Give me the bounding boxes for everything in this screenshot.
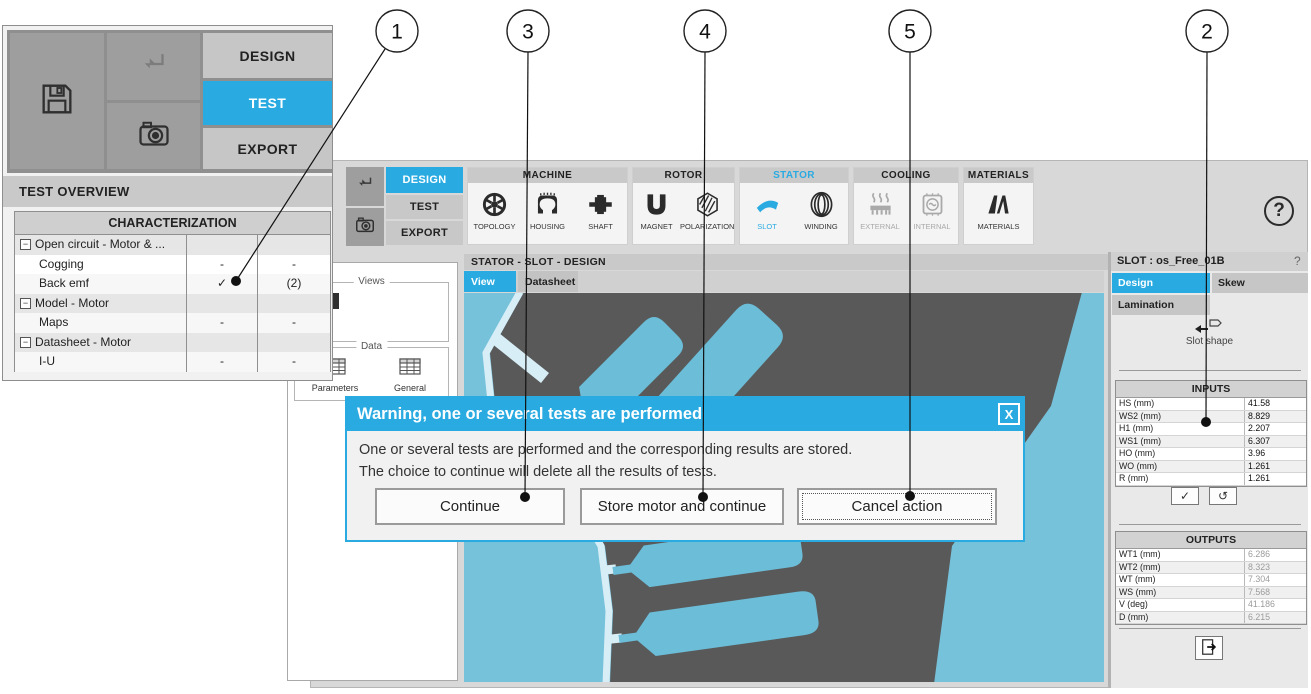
ribbon-group-title: MATERIALS (964, 168, 1033, 183)
ribbon-item-polarization[interactable]: POLARIZATION (680, 188, 734, 231)
ribbon-item-magnet[interactable]: MAGNET (633, 188, 680, 231)
callout-circle-5 (889, 10, 931, 52)
test-status-cell (187, 294, 258, 314)
parameter-row[interactable]: D (mm)6.215 (1116, 612, 1306, 625)
ribbon-item-materials[interactable]: MATERIALS (972, 188, 1026, 231)
callout-number-2: 2 (1201, 21, 1213, 44)
parameter-label: HO (mm) (1116, 448, 1245, 460)
cancel-action-button[interactable]: Cancel action (797, 488, 997, 525)
continue-button[interactable]: Continue (375, 488, 565, 525)
test-count-cell (258, 294, 330, 314)
callout-number-3: 3 (522, 21, 534, 44)
ribbon-group-title: STATOR (740, 168, 848, 183)
save-icon (37, 79, 77, 124)
parameter-label: H1 (mm) (1116, 423, 1245, 435)
parameter-value: 6.215 (1245, 612, 1306, 624)
test-count-cell (258, 235, 330, 255)
test-name: I-U (39, 354, 55, 368)
callout-number-5: 5 (904, 21, 916, 44)
magnet-icon (633, 188, 680, 220)
parameter-row[interactable]: WT (mm)7.304 (1116, 574, 1306, 587)
polarization-icon (680, 188, 734, 220)
ribbon-item-label: INTERNAL (906, 222, 958, 231)
collapse-icon[interactable]: − (20, 337, 31, 348)
tab-datasheet[interactable]: Datasheet (518, 271, 578, 292)
divider (1119, 524, 1301, 525)
parameter-label: WO (mm) (1116, 461, 1245, 473)
ribbon-group-cooling: COOLING EXTERNALINTERNAL (853, 167, 959, 245)
parameter-label: WT2 (mm) (1116, 562, 1245, 574)
housing-icon (521, 188, 574, 220)
test-name: Cogging (39, 257, 84, 271)
test-name: Back emf (39, 276, 89, 290)
dialog-title: Warning, one or several tests are perfor… (347, 398, 1023, 431)
export-icon (1200, 638, 1218, 659)
parameter-value[interactable]: 6.307 (1245, 436, 1306, 448)
test-status-cell: - (187, 352, 258, 372)
ribbon-item-external: EXTERNAL (854, 188, 906, 231)
topology-icon (468, 188, 521, 220)
parameter-row[interactable]: WS (mm)7.568 (1116, 587, 1306, 600)
undo-icon (137, 47, 171, 86)
ribbon-group-title: MACHINE (468, 168, 627, 183)
nav-design-button[interactable]: DESIGN (386, 167, 463, 193)
parameter-row[interactable]: WT2 (mm)8.323 (1116, 562, 1306, 575)
help-button[interactable]: ? (1264, 196, 1294, 226)
dialog-message-line: The choice to continue will delete all t… (359, 464, 1009, 482)
characterization-row[interactable]: Cogging-- (15, 255, 330, 275)
ribbon-item-housing[interactable]: HOUSING (521, 188, 574, 231)
slot-shape-icon[interactable] (1194, 318, 1224, 336)
parameter-value: 6.286 (1245, 549, 1306, 561)
divider (1119, 370, 1301, 371)
parameter-label: D (mm) (1116, 612, 1245, 624)
test-overview-title: TEST OVERVIEW (3, 176, 332, 207)
snapshot-button[interactable] (107, 103, 200, 169)
inputs-rows: HS (mm)41.58WS2 (mm)8.829H1 (mm)2.207WS1… (1116, 398, 1306, 486)
callout-circle-4 (684, 10, 726, 52)
test-status-cell: ✓ (187, 274, 258, 294)
slot-panel-help[interactable]: ? (1294, 252, 1308, 271)
sidebar-item-label: Parameters (305, 383, 365, 393)
parameter-label: WS1 (mm) (1116, 436, 1245, 448)
camera-icon (354, 214, 376, 241)
close-icon[interactable]: X (998, 403, 1020, 425)
test-name: Maps (39, 315, 68, 329)
ribbon-item-label: POLARIZATION (680, 222, 734, 231)
characterization-row[interactable]: −Open circuit - Motor & ... (15, 235, 330, 255)
ribbon-item-slot[interactable]: SLOT (740, 188, 794, 231)
parameter-value[interactable]: 1.261 (1245, 473, 1306, 485)
export-button[interactable]: EXPORT (203, 128, 332, 169)
parameter-label: WT (mm) (1116, 574, 1245, 586)
parameter-row[interactable]: H1 (mm)2.207 (1116, 423, 1306, 436)
tab-view[interactable]: View (464, 271, 516, 292)
characterization-rows: −Open circuit - Motor & ...Cogging--Back… (15, 235, 330, 372)
parameter-row[interactable]: HO (mm)3.96 (1116, 448, 1306, 461)
ribbon-item-label: SLOT (740, 222, 794, 231)
parameter-row[interactable]: V (deg)41.186 (1116, 599, 1306, 612)
parameter-label: V (deg) (1116, 599, 1245, 611)
callout-circle-2 (1186, 10, 1228, 52)
parameter-value: 8.323 (1245, 562, 1306, 574)
ribbon-group-rotor: ROTOR MAGNETPOLARIZATION (632, 167, 735, 245)
characterization-row[interactable]: Back emf✓(2) (15, 274, 330, 294)
parameter-row[interactable]: R (mm)1.261 (1116, 473, 1306, 486)
undo-button[interactable] (107, 33, 200, 100)
parameter-label: HS (mm) (1116, 398, 1245, 410)
ribbon-item-internal: INTERNAL (906, 188, 958, 231)
views-group-label: Views (353, 276, 390, 287)
parameter-row[interactable]: WO (mm)1.261 (1116, 461, 1306, 474)
characterization-row[interactable]: I-U-- (15, 352, 330, 372)
ribbon-item-shaft[interactable]: SHAFT (574, 188, 627, 231)
store-and-continue-button[interactable]: Store motor and continue (580, 488, 784, 525)
characterization-table: CHARACTERIZATION −Open circuit - Motor &… (14, 211, 331, 372)
inputs-title: INPUTS (1116, 381, 1306, 398)
ribbon-group-stator: STATOR SLOTWINDING (739, 167, 849, 245)
sidebar-item-label: General (380, 383, 440, 393)
nav-export-button[interactable]: EXPORT (386, 221, 463, 245)
nav-test-button[interactable]: TEST (386, 195, 463, 219)
parameter-label: WT1 (mm) (1116, 549, 1245, 561)
outputs-title: OUTPUTS (1116, 532, 1306, 549)
characterization-header: CHARACTERIZATION (15, 212, 330, 235)
inputs-table: INPUTS HS (mm)41.58WS2 (mm)8.829H1 (mm)2… (1115, 380, 1307, 487)
parameter-value[interactable]: 3.96 (1245, 448, 1306, 460)
test-count-cell: - (258, 352, 330, 372)
sidebar-item-general[interactable]: General (380, 358, 440, 393)
callout-circle-1 (376, 10, 418, 52)
slot-icon (740, 188, 794, 220)
characterization-row[interactable]: −Datasheet - Motor (15, 333, 330, 353)
parameter-label: R (mm) (1116, 473, 1245, 485)
callout-number-1: 1 (391, 21, 403, 44)
export-slot-button[interactable] (1195, 636, 1223, 660)
test-name: Open circuit - Motor & ... (35, 237, 165, 251)
reset-button[interactable]: ↺ (1209, 487, 1237, 505)
slot-properties-panel: SLOT : os_Free_01B ? Design Skew Laminat… (1108, 252, 1308, 688)
parameter-row[interactable]: WS2 (mm)8.829 (1116, 411, 1306, 424)
materials-icon (972, 188, 1026, 220)
tab-skew[interactable]: Skew (1212, 273, 1308, 293)
outputs-rows: WT1 (mm)6.286WT2 (mm)8.323WT (mm)7.304WS… (1116, 549, 1306, 624)
design-button[interactable]: DESIGN (203, 33, 332, 78)
camera-icon (136, 116, 172, 157)
test-status-cell (187, 333, 258, 353)
dialog-message-line: One or several tests are performed and t… (359, 442, 1009, 460)
parameter-value[interactable]: 2.207 (1245, 423, 1306, 435)
apply-button[interactable]: ✓ (1171, 487, 1199, 505)
test-status-cell: - (187, 255, 258, 275)
parameter-value[interactable]: 1.261 (1245, 461, 1306, 473)
ribbon-group-title: ROTOR (633, 168, 734, 183)
winding-icon (794, 188, 848, 220)
parameter-row[interactable]: HS (mm)41.58 (1116, 398, 1306, 411)
test-name: Model - Motor (35, 296, 109, 310)
data-group-label: Data (356, 341, 387, 352)
test-status-cell: - (187, 313, 258, 333)
parameter-row[interactable]: WS1 (mm)6.307 (1116, 436, 1306, 449)
parameter-value[interactable]: 41.58 (1245, 398, 1306, 410)
ribbon-group-title: COOLING (854, 168, 958, 183)
ribbon-item-label: EXTERNAL (854, 222, 906, 231)
callout-circle-3 (507, 10, 549, 52)
ribbon-item-winding[interactable]: WINDING (794, 188, 848, 231)
characterization-row[interactable]: Maps-- (15, 313, 330, 333)
test-button[interactable]: TEST (203, 81, 332, 125)
ribbon-item-label: HOUSING (521, 222, 574, 231)
divider (1119, 628, 1301, 629)
ribbon-item-label: WINDING (794, 222, 848, 231)
test-count-cell: - (258, 255, 330, 275)
parameter-value[interactable]: 8.829 (1245, 411, 1306, 423)
undo-icon (354, 173, 376, 200)
slot-panel-title: SLOT : os_Free_01B (1111, 252, 1308, 271)
test-name: Datasheet - Motor (35, 335, 131, 349)
general-icon (399, 362, 421, 379)
undo-button[interactable] (346, 167, 384, 206)
ribbon-item-label: MAGNET (633, 222, 680, 231)
test-overview-inset: DESIGN TEST EXPORT TEST OVERVIEW CHARACT… (2, 25, 333, 381)
ribbon-item-topology[interactable]: TOPOLOGY (468, 188, 521, 231)
parameter-row[interactable]: WT1 (mm)6.286 (1116, 549, 1306, 562)
collapse-icon[interactable]: − (20, 298, 31, 309)
parameter-value: 41.186 (1245, 599, 1306, 611)
parameter-label: WS (mm) (1116, 587, 1245, 599)
test-status-cell (187, 235, 258, 255)
parameter-label: WS2 (mm) (1116, 411, 1245, 423)
screenshot-root: DESIGN TEST EXPORT MACHINE TOPOLOGYHOUSI… (0, 0, 1311, 694)
parameter-value: 7.304 (1245, 574, 1306, 586)
snapshot-button[interactable] (346, 208, 384, 246)
test-count-cell: (2) (258, 274, 330, 294)
ribbon-item-label: SHAFT (574, 222, 627, 231)
shaft-icon (574, 188, 627, 220)
ribbon-group-machine: MACHINE TOPOLOGYHOUSINGSHAFT (467, 167, 628, 245)
external-icon (854, 188, 906, 220)
callout-number-4: 4 (699, 21, 711, 44)
parameter-value: 7.568 (1245, 587, 1306, 599)
internal-icon (906, 188, 958, 220)
ribbon-item-label: TOPOLOGY (468, 222, 521, 231)
characterization-row[interactable]: −Model - Motor (15, 294, 330, 314)
collapse-icon[interactable]: − (20, 239, 31, 250)
tab-lamination[interactable]: Lamination (1112, 295, 1210, 315)
content-header: STATOR - SLOT - DESIGN (464, 254, 1111, 270)
tab-design[interactable]: Design (1112, 273, 1210, 293)
save-button[interactable] (10, 33, 104, 169)
ribbon-group-materials: MATERIALS MATERIALS (963, 167, 1034, 245)
slot-shape-label: Slot shape (1111, 336, 1308, 347)
warning-dialog: Warning, one or several tests are perfor… (345, 396, 1025, 542)
test-count-cell: - (258, 313, 330, 333)
ribbon-item-label: MATERIALS (972, 222, 1026, 231)
outputs-table: OUTPUTS WT1 (mm)6.286WT2 (mm)8.323WT (mm… (1115, 531, 1307, 625)
test-count-cell (258, 333, 330, 353)
